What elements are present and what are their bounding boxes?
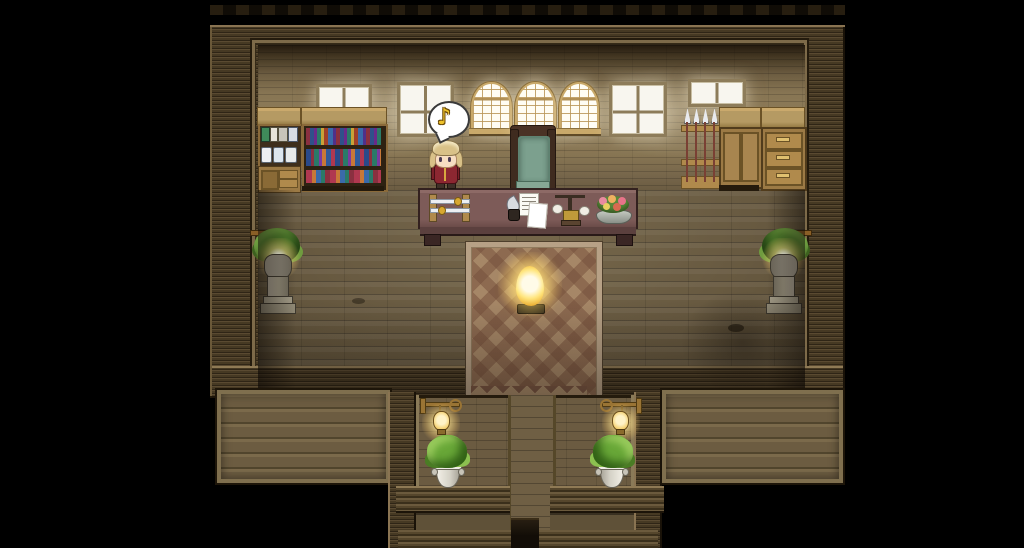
window-pane	[561, 84, 597, 130]
drawer-handle	[776, 137, 790, 142]
parapet-face-left	[416, 513, 510, 530]
jar	[261, 127, 270, 142]
window-sill	[557, 128, 601, 136]
lower-panel-left	[217, 390, 390, 483]
parapet-right	[550, 486, 664, 513]
scale-base	[561, 220, 581, 226]
chair-back-cushion	[518, 136, 550, 185]
sword-display	[427, 194, 471, 224]
bookshelf[interactable]	[301, 107, 387, 191]
parapet-left	[396, 486, 510, 513]
drawer-dresser[interactable]	[761, 107, 805, 191]
book-row	[306, 149, 381, 166]
balance-scale	[552, 192, 588, 224]
spear-shaft	[713, 122, 715, 182]
flower	[608, 195, 616, 203]
jar	[285, 147, 297, 163]
sword-hilt	[438, 206, 446, 215]
cabinet-base	[719, 185, 759, 191]
lantern-tip	[437, 429, 446, 435]
lantern-lamp	[433, 411, 450, 431]
arched-window-1	[470, 81, 513, 136]
spear-shaft	[695, 122, 697, 182]
documents	[506, 193, 551, 225]
cupboard-door	[261, 170, 279, 190]
player-character[interactable]	[428, 139, 462, 188]
jar	[288, 127, 298, 142]
drawer	[279, 170, 298, 179]
cabinet-door	[723, 132, 741, 182]
character-eye	[439, 157, 442, 162]
scale-pan	[552, 204, 563, 214]
sword-hilt	[454, 197, 462, 206]
jar-shelf[interactable]	[257, 107, 301, 191]
book-row	[306, 170, 381, 183]
arched-window-3	[558, 81, 600, 136]
stairs-down-dark[interactable]	[511, 518, 539, 548]
game-viewport[interactable]: ♪	[0, 0, 1024, 548]
jar	[261, 147, 272, 163]
drawer	[279, 179, 298, 188]
plain-window-tall-right	[609, 82, 667, 137]
desk[interactable]	[418, 188, 638, 245]
terrace-column-left	[388, 392, 416, 548]
parapet-face-right	[550, 513, 634, 530]
lantern-lamp	[612, 411, 629, 431]
desk-front	[420, 227, 636, 236]
office-chair[interactable]	[508, 125, 556, 193]
floor-dark-patch	[680, 290, 805, 395]
character-eye	[448, 157, 451, 162]
drawer-handle	[776, 155, 790, 160]
plant-bush	[427, 436, 467, 468]
flower	[603, 203, 610, 210]
ink-pot	[508, 209, 520, 221]
scale-pan	[579, 206, 590, 216]
floor-knot	[728, 324, 744, 332]
character-hair	[432, 140, 460, 156]
desk-leg	[616, 234, 633, 246]
sword-blade	[430, 199, 470, 204]
spear-shaft	[704, 122, 706, 182]
music-note-icon: ♪	[437, 105, 451, 131]
plain-window-small-right	[688, 79, 746, 107]
potted-plant-left	[426, 436, 468, 488]
jar	[273, 147, 284, 163]
dresser-top	[761, 107, 805, 129]
cabinet-top	[719, 107, 761, 129]
vase-handle	[458, 468, 465, 476]
roof-shadow-strip	[210, 5, 845, 15]
window-pane	[517, 84, 554, 130]
vase-handle	[595, 468, 602, 476]
paper	[527, 202, 548, 229]
spear-rack[interactable]	[681, 106, 718, 191]
vase-handle	[622, 468, 629, 476]
jar	[270, 127, 278, 142]
lantern-tip	[616, 429, 625, 435]
drawer-handle	[776, 173, 790, 178]
potted-plant-right	[592, 436, 634, 488]
double-door-cabinet[interactable]	[719, 107, 761, 191]
lower-panel-right	[662, 390, 843, 483]
music-balloon: ♪	[428, 101, 468, 141]
cabinet-door	[741, 132, 759, 182]
desk-leg	[424, 234, 441, 246]
book-row	[306, 128, 381, 145]
spear-shaft	[686, 122, 688, 182]
shelf-base	[302, 186, 384, 191]
sword-blade	[430, 208, 470, 213]
plant-bush	[593, 436, 633, 468]
flower-bowl	[595, 194, 631, 224]
vase-handle	[431, 468, 438, 476]
flower	[613, 203, 621, 211]
floor-knot	[352, 298, 365, 304]
jar	[278, 127, 288, 142]
window-pane	[473, 84, 510, 130]
